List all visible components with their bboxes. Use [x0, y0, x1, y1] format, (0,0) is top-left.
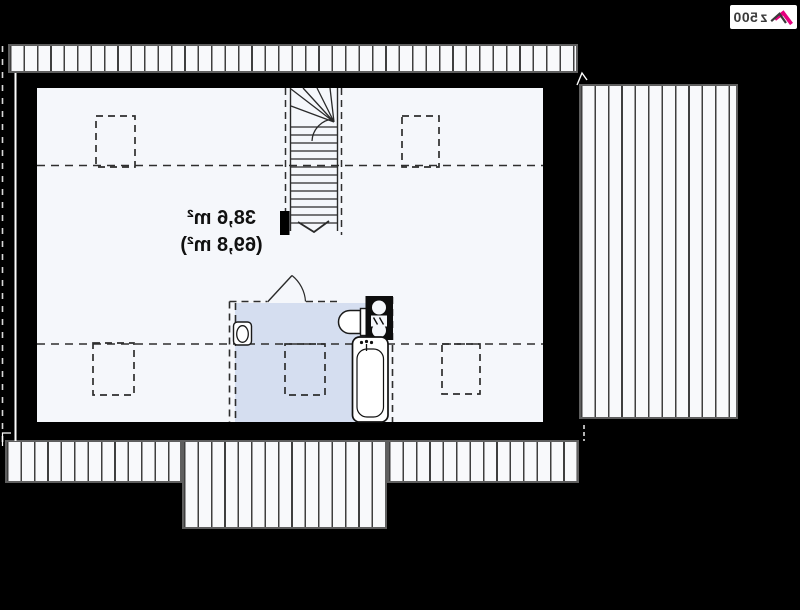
area-total: (69,8 m²) [159, 232, 284, 259]
door-arc [292, 276, 306, 302]
area-label: 38,6 m² (69,8 m²) [159, 205, 284, 259]
door-swing [268, 276, 306, 303]
logo-text: 500 [733, 10, 758, 24]
z500-logo: z500 [730, 5, 797, 29]
appliance-drum-top [372, 301, 386, 315]
roof-icon [770, 9, 794, 26]
roof-window-top-left [96, 116, 135, 167]
area-usable: 38,6 m² [159, 205, 284, 232]
roof-window-bottom-middle [285, 344, 325, 395]
staircase [280, 88, 342, 235]
stair-treads [291, 127, 338, 223]
washbasin [339, 309, 368, 336]
corner-mark-top-right [577, 73, 587, 85]
logo-text-accent: z [760, 10, 768, 24]
roof-window-bottom-left [93, 343, 134, 395]
appliance-column [366, 296, 394, 340]
appliance-panel [371, 316, 387, 327]
bathtub [353, 337, 389, 422]
roof-window-top-right [402, 116, 439, 167]
door-leaf [268, 276, 293, 303]
basin-bowl [339, 311, 361, 334]
corner-mark-bottom-left [3, 433, 12, 446]
roof-window-dashed-rects [93, 116, 480, 395]
stair-winder-lines [291, 88, 334, 122]
roof-window-bottom-right [442, 344, 480, 394]
toilet [234, 322, 252, 345]
z500-logo-inner: z500 [733, 9, 793, 26]
floor-plan-canvas: 38,6 m² (69,8 m²) z500 [0, 0, 800, 610]
bathroom-wall-left [230, 302, 236, 423]
plan-linework [0, 0, 800, 610]
stair-walk-line-arc [312, 119, 334, 141]
toilet-bowl [237, 326, 249, 343]
